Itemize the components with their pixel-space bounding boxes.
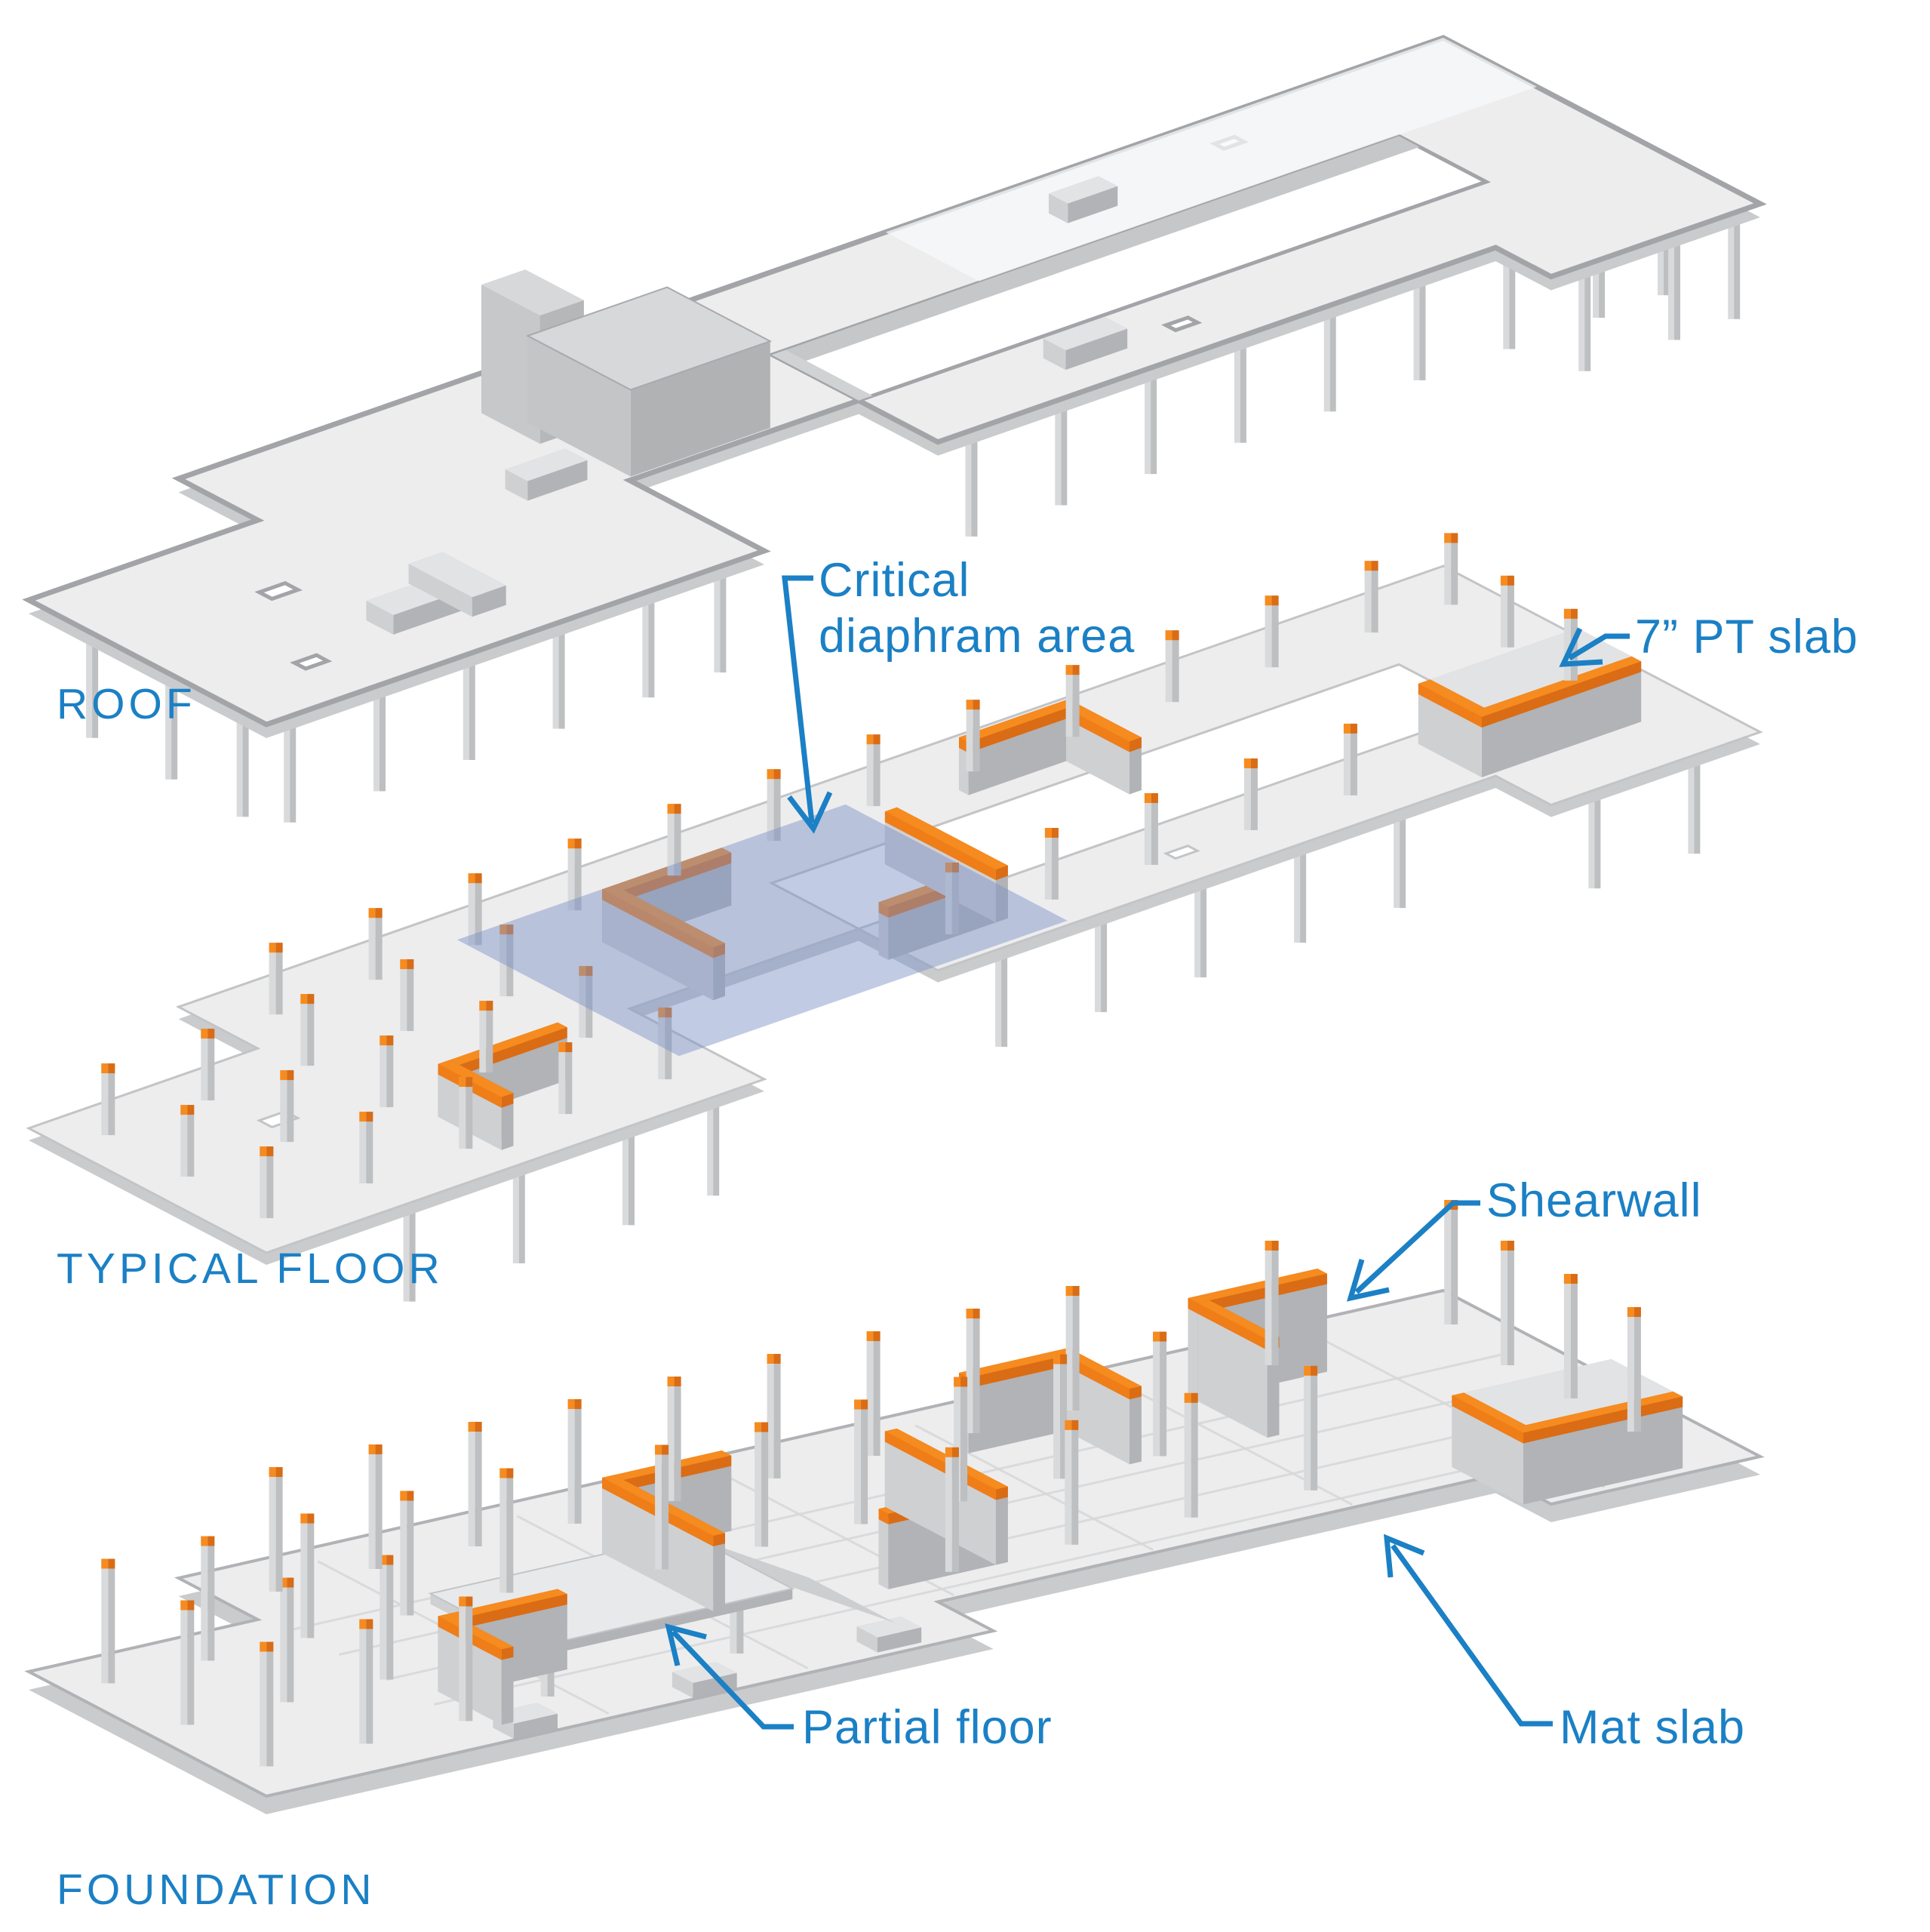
pt-slab-label: 7” PT slab [1635,611,1858,663]
annotation-shearwall: Shearwall [1351,1174,1702,1298]
shearwall-leader-line [1357,1203,1480,1292]
diagram-canvas: ROOF TYPICAL FLOOR FOUNDATION Critical d… [0,0,1930,1932]
shearwall-label: Shearwall [1486,1174,1702,1227]
annotation-mat-slab: Mat slab [1387,1538,1745,1754]
exploded-structural-diagram: ROOF TYPICAL FLOOR FOUNDATION Critical d… [0,0,1930,1932]
critical-diaphragm-leader-line [785,578,813,823]
typical-floor-label: TYPICAL FLOOR [57,1244,444,1293]
mat-slab-label: Mat slab [1560,1701,1745,1754]
critical-diaphragm-label-line1: Critical [819,554,970,607]
mat-slab-leader-line [1393,1546,1553,1724]
roof-label: ROOF [57,680,196,728]
mat-slab-arrowhead [1387,1538,1424,1577]
foundation-label: FOUNDATION [57,1866,376,1914]
critical-diaphragm-label-line2: diaphram area [819,610,1135,663]
partial-floor-label: Partial floor [802,1701,1053,1754]
